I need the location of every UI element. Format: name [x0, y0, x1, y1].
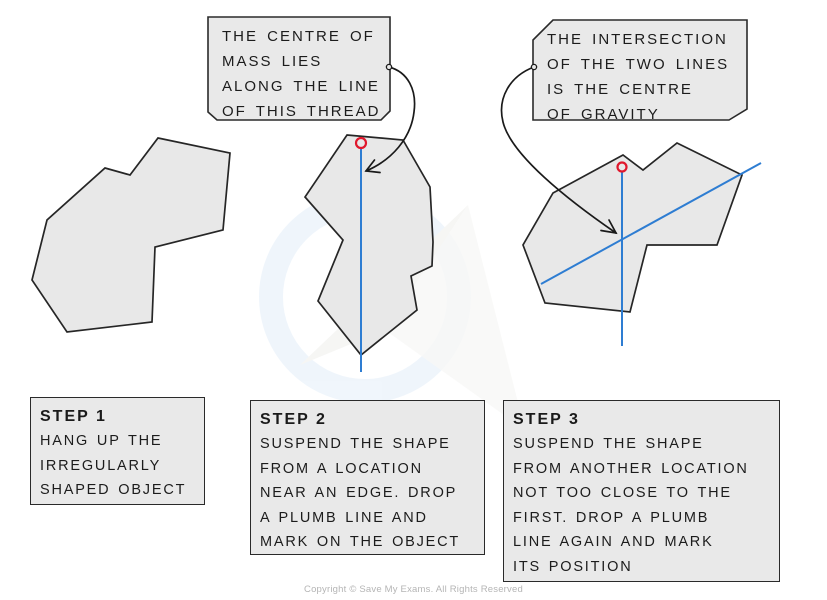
step-2-box: STEP 2 SUSPEND THE SHAPE FROM A LOCATION…: [250, 400, 485, 555]
callout-line: THE CENTRE OF: [222, 24, 380, 49]
step-2-title: STEP 2: [260, 408, 475, 432]
callout-line: IS THE CENTRE: [547, 77, 729, 102]
step-1-line: SHAPED OBJECT: [40, 478, 195, 503]
callout-line: THE INTERSECTION: [547, 27, 729, 52]
step-1-box: STEP 1 HANG UP THE IRREGULARLY SHAPED OB…: [30, 397, 205, 505]
step-1-line: HANG UP THE: [40, 429, 195, 454]
step-3-line: NOT TOO CLOSE TO THE: [513, 481, 770, 506]
step-2-line: A PLUMB LINE AND: [260, 506, 475, 531]
copyright-text: Copyright © Save My Exams. All Rights Re…: [0, 584, 827, 595]
step-3-line: FROM ANOTHER LOCATION: [513, 457, 770, 482]
step-3-line: ITS POSITION: [513, 555, 770, 580]
callout-2-connector-dot: [531, 64, 536, 69]
step-3-line: FIRST. DROP A PLUMB: [513, 506, 770, 531]
callout-intersection: THE INTERSECTION OF THE TWO LINES IS THE…: [547, 27, 729, 127]
callout-centre-of-mass: THE CENTRE OF MASS LIES ALONG THE LINE O…: [222, 24, 380, 124]
step-2-line: MARK ON THE OBJECT: [260, 530, 475, 555]
irregular-shape-3-two-lines: [523, 143, 742, 312]
step-1-line: IRREGULARLY: [40, 454, 195, 479]
step-3-title: STEP 3: [513, 408, 770, 432]
step-1-title: STEP 1: [40, 405, 195, 429]
callout-1-connector-dot: [386, 64, 391, 69]
callout-line: OF THIS THREAD: [222, 99, 380, 124]
step-3-line: SUSPEND THE SHAPE: [513, 432, 770, 457]
callout-line: OF GRAVITY: [547, 102, 729, 127]
irregular-shape-1: [32, 138, 230, 332]
step-2-line: NEAR AN EDGE. DROP: [260, 481, 475, 506]
callout-line: OF THE TWO LINES: [547, 52, 729, 77]
callout-line: MASS LIES: [222, 49, 380, 74]
step-2-line: FROM A LOCATION: [260, 457, 475, 482]
step-3-line: LINE AGAIN AND MARK: [513, 530, 770, 555]
callout-line: ALONG THE LINE: [222, 74, 380, 99]
diagram-canvas: THE CENTRE OF MASS LIES ALONG THE LINE O…: [0, 0, 827, 600]
step-3-box: STEP 3 SUSPEND THE SHAPE FROM ANOTHER LO…: [503, 400, 780, 582]
step-2-line: SUSPEND THE SHAPE: [260, 432, 475, 457]
